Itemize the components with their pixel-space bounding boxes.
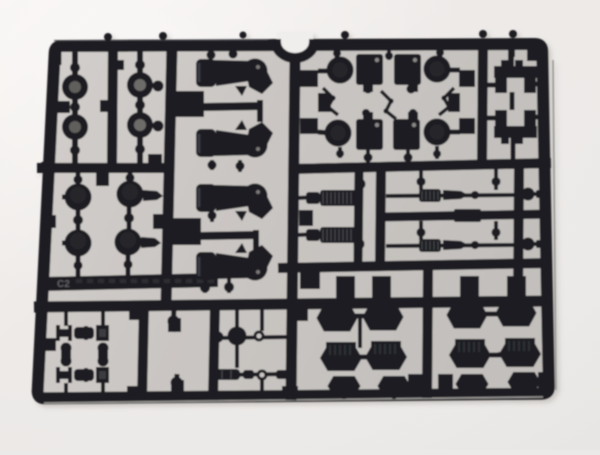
svg-text:C2: C2 [57, 279, 70, 290]
